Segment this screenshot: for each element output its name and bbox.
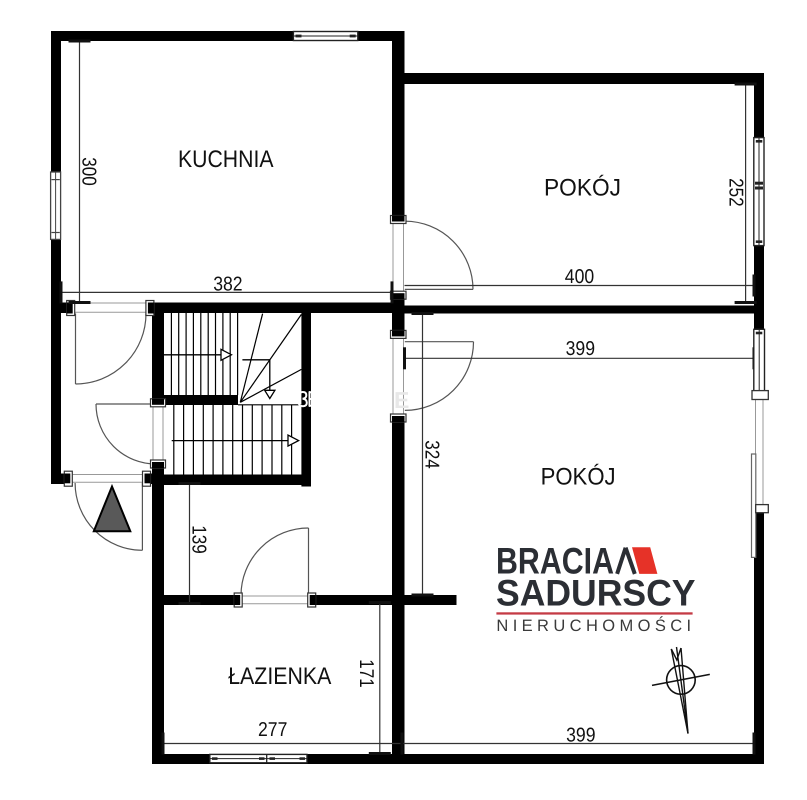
svg-text:ŁAZIENKA: ŁAZIENKA: [228, 663, 331, 690]
svg-text:252: 252: [725, 178, 747, 207]
svg-text:POKÓJ: POKÓJ: [544, 175, 621, 202]
svg-text:KUCHNIA: KUCHNIA: [178, 146, 274, 173]
svg-text:400: 400: [565, 266, 594, 288]
svg-text:399: 399: [566, 725, 595, 747]
svg-text:382: 382: [213, 274, 242, 296]
svg-text:277: 277: [258, 719, 287, 741]
svg-text:NIERUCHOMOŚCI: NIERUCHOMOŚCI: [496, 616, 691, 635]
svg-text:300: 300: [78, 157, 100, 186]
svg-text:SADURSCY: SADURSCY: [496, 573, 696, 614]
svg-text:171: 171: [355, 659, 377, 688]
svg-text:POKÓJ: POKÓJ: [541, 463, 616, 490]
svg-text:324: 324: [421, 440, 443, 469]
svg-text:E: E: [394, 387, 409, 413]
svg-text:399: 399: [566, 338, 595, 360]
svg-text:139: 139: [188, 525, 210, 554]
